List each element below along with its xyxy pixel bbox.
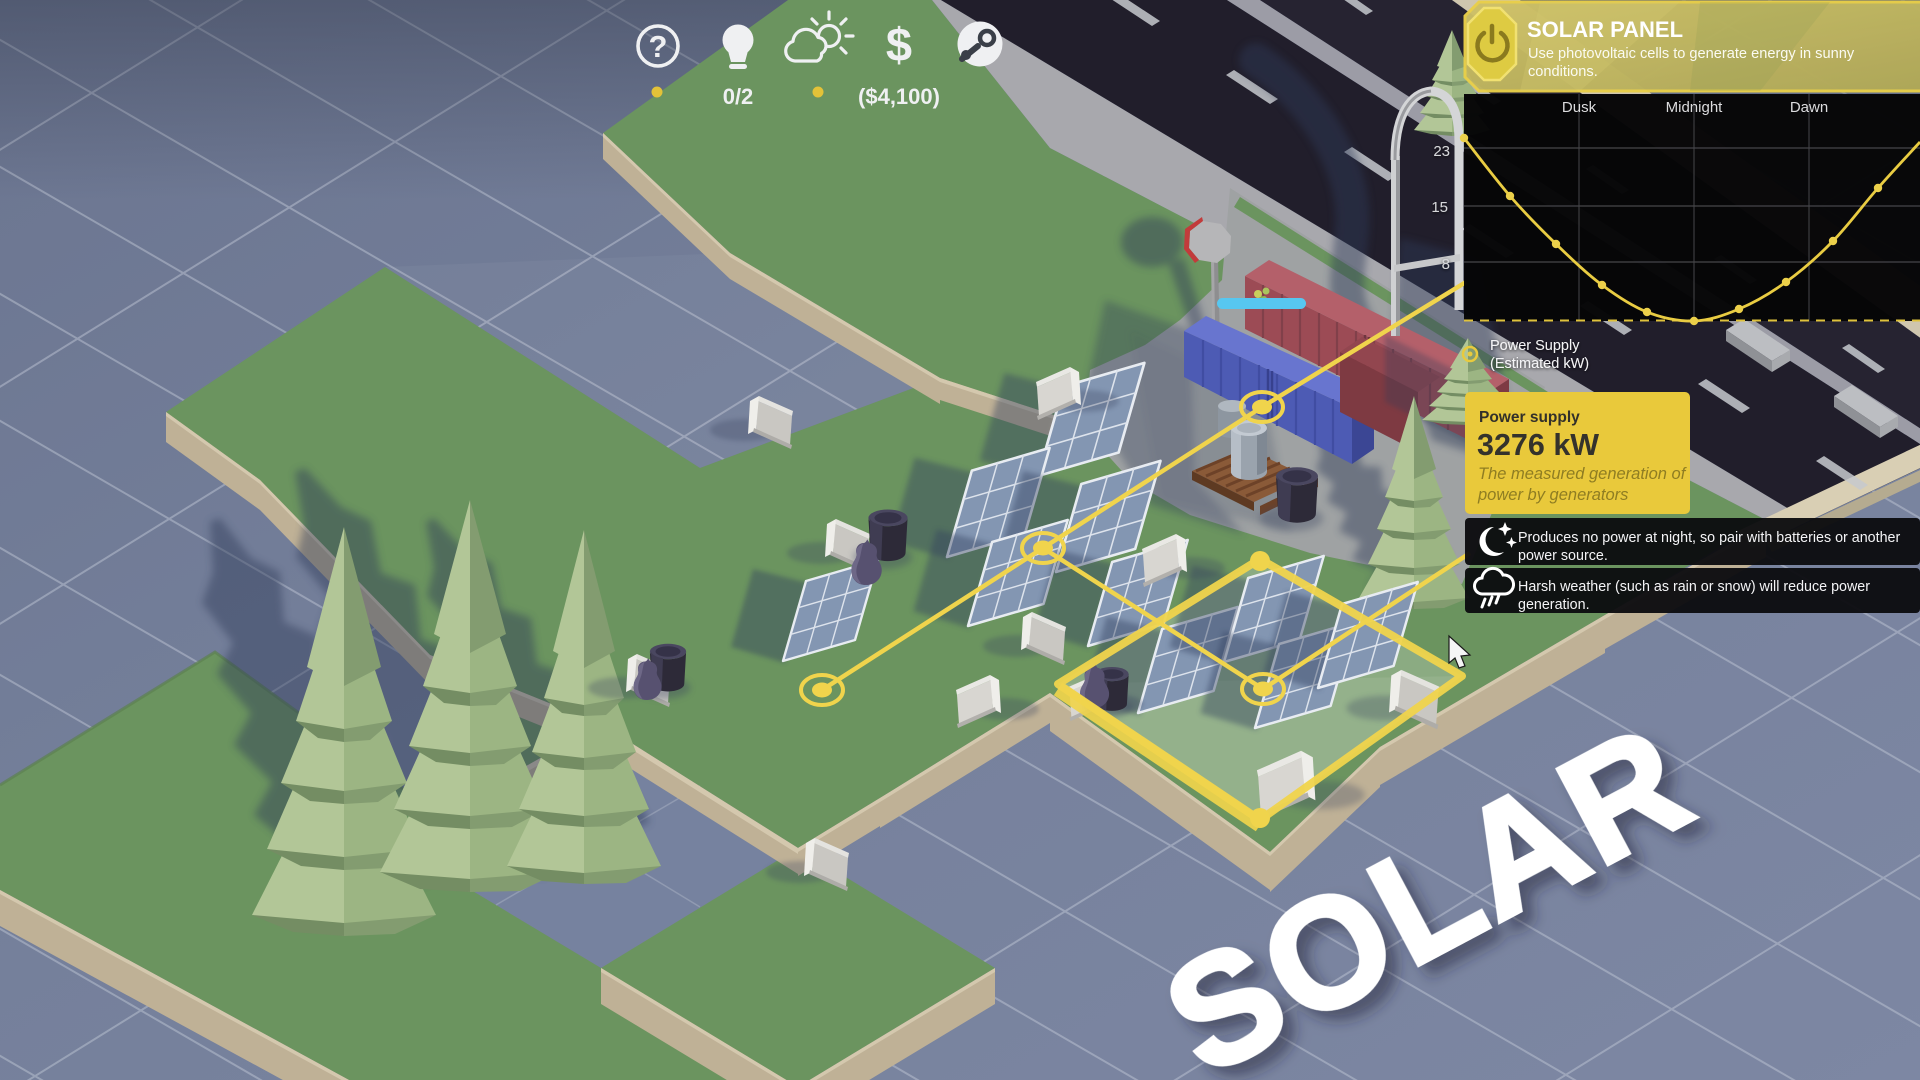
svg-text:SOLAR PANEL: SOLAR PANEL xyxy=(1527,17,1683,42)
svg-text:Dawn: Dawn xyxy=(1790,99,1828,116)
svg-text:Midnight: Midnight xyxy=(1666,99,1724,116)
svg-text:conditions.: conditions. xyxy=(1528,64,1598,80)
svg-text:power source.: power source. xyxy=(1518,548,1608,564)
svg-text:generation.: generation. xyxy=(1518,597,1590,613)
svg-text:(Estimated kW): (Estimated kW) xyxy=(1490,356,1589,372)
svg-text:power by generators: power by generators xyxy=(1477,486,1628,504)
svg-text:Use photovoltaic cells to gene: Use photovoltaic cells to generate energ… xyxy=(1528,46,1855,62)
svg-text:8: 8 xyxy=(1442,256,1450,273)
svg-text:The measured generation of: The measured generation of xyxy=(1478,465,1688,483)
svg-text:($4,100): ($4,100) xyxy=(858,84,940,109)
svg-text:$: $ xyxy=(886,18,912,71)
svg-text:Power Supply: Power Supply xyxy=(1490,338,1580,354)
svg-text:?: ? xyxy=(649,29,668,64)
svg-text:Power supply: Power supply xyxy=(1479,409,1580,426)
svg-text:Produces no power at night, so: Produces no power at night, so pair with… xyxy=(1518,530,1900,546)
svg-text:3276 kW: 3276 kW xyxy=(1477,428,1599,462)
svg-text:Harsh weather (such as rain or: Harsh weather (such as rain or snow) wil… xyxy=(1518,579,1870,595)
svg-text:Dusk: Dusk xyxy=(1562,99,1597,116)
svg-text:23: 23 xyxy=(1433,143,1450,160)
svg-text:15: 15 xyxy=(1431,199,1448,216)
svg-text:0/2: 0/2 xyxy=(723,84,754,109)
